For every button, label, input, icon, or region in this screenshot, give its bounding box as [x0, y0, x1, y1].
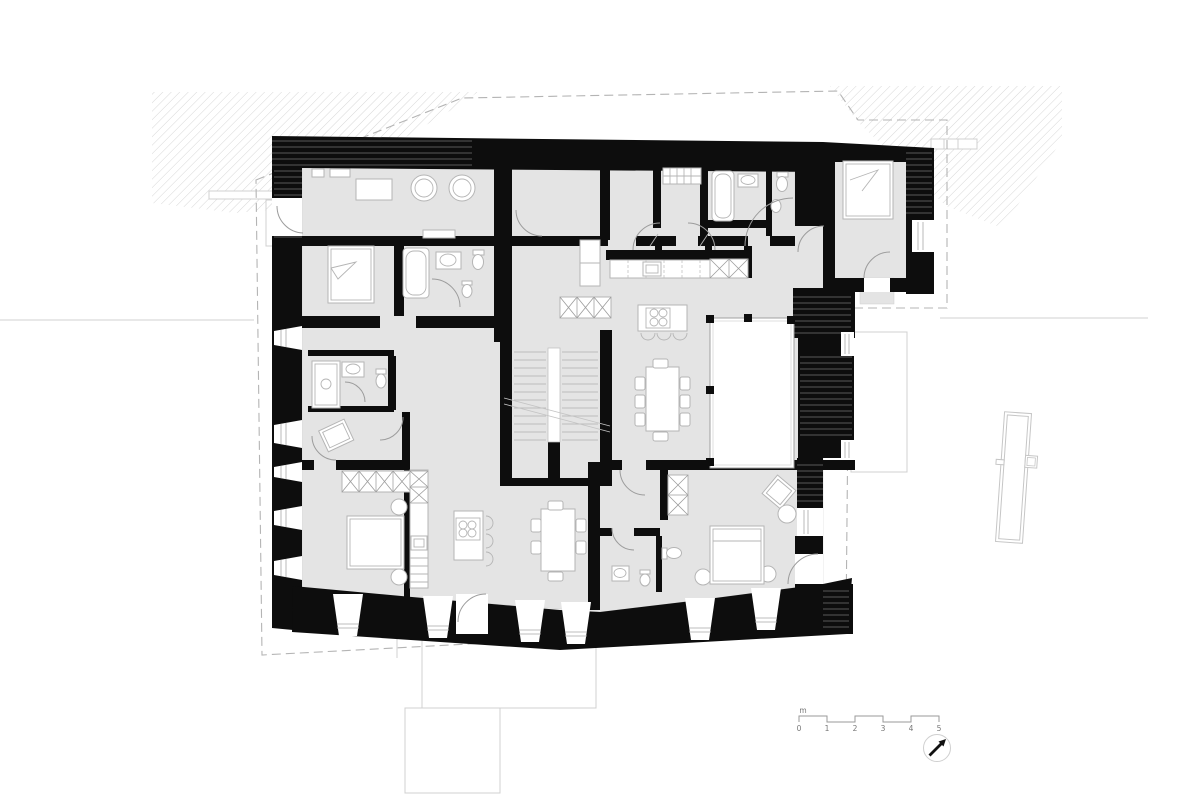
bidet-icon [640, 570, 650, 586]
scale-tick-0: 0 [797, 724, 802, 733]
bathtub-icon [403, 248, 429, 298]
wardrobe-x-icon [668, 475, 688, 515]
glazed-court [706, 314, 795, 468]
floor-plan-canvas: m 0 1 2 3 4 5 [0, 0, 1200, 800]
wardrobe-x-icon [560, 297, 611, 318]
wardrobe-x-icon [410, 470, 428, 588]
table-icon [356, 179, 392, 200]
toilet-icon [376, 369, 386, 388]
floor-plan-drawing: m 0 1 2 3 4 5 [0, 0, 1200, 800]
scale-tick-4: 4 [909, 724, 914, 733]
scale-tick-1: 1 [825, 724, 830, 733]
shelf-icon [663, 168, 701, 184]
side-table-icon [778, 505, 796, 523]
toilet-icon [473, 250, 485, 270]
bidet-icon [462, 281, 472, 298]
shower-icon [312, 361, 340, 408]
scale-tick-2: 2 [853, 724, 858, 733]
bed-icon [710, 526, 764, 584]
washbasin-icon [612, 566, 629, 581]
north-indicator [924, 735, 951, 762]
wardrobe-x-icon [342, 471, 411, 492]
outbuilding-outline [991, 411, 1041, 544]
bed-icon [843, 161, 893, 219]
washbasin-icon [436, 252, 461, 269]
bathtub-icon [712, 171, 734, 221]
scale-tick-3: 3 [881, 724, 886, 733]
washbasin-icon [738, 174, 758, 187]
side-table-icon [695, 569, 711, 585]
washbasin-icon [342, 362, 364, 377]
bed-icon [328, 246, 374, 303]
exterior-bench-left [209, 191, 282, 246]
toilet-icon [662, 548, 682, 560]
exterior-bench-right [931, 139, 977, 149]
toilet-icon [777, 172, 789, 192]
scale-bar: m 0 1 2 3 4 5 [797, 706, 942, 733]
scale-unit-label: m [799, 706, 806, 715]
scale-tick-5: 5 [937, 724, 942, 733]
